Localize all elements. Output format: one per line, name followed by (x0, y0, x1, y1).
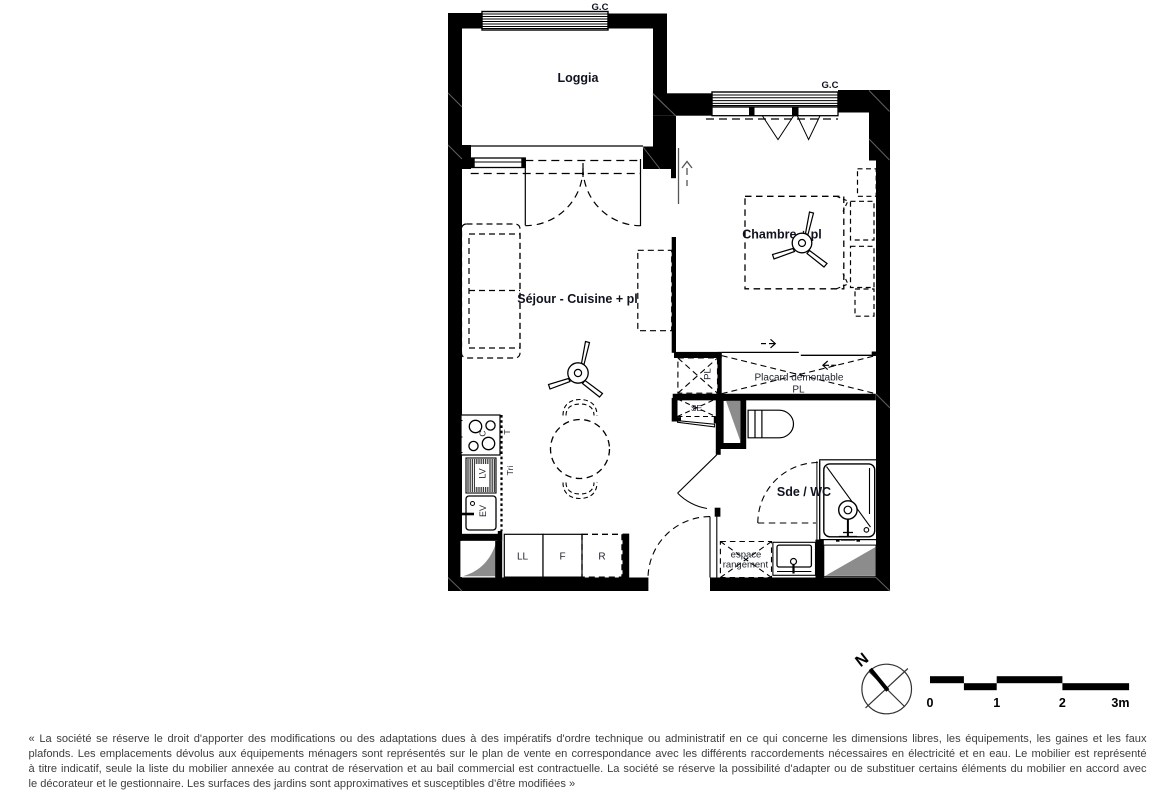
svg-text:T: T (502, 429, 512, 434)
svg-text:0: 0 (927, 696, 934, 710)
svg-text:Placard démontable: Placard démontable (755, 373, 844, 384)
svg-text:Tri: Tri (505, 466, 515, 476)
svg-text:3m: 3m (1111, 696, 1129, 710)
svg-text:F: F (559, 552, 565, 563)
svg-text:2: 2 (1059, 696, 1066, 710)
svg-text:PL: PL (792, 384, 805, 395)
svg-text:Sde / WC: Sde / WC (777, 485, 831, 499)
svg-text:R: R (598, 552, 605, 563)
svg-text:PL: PL (703, 368, 714, 380)
svg-text:SE: SE (691, 403, 703, 413)
svg-text:G.C: G.C (592, 2, 609, 13)
svg-text:Séjour - Cuisine + pl: Séjour - Cuisine + pl (517, 292, 638, 306)
svg-text:G.C: G.C (822, 80, 839, 91)
svg-text:N: N (853, 650, 873, 671)
svg-text:LL: LL (517, 552, 529, 563)
svg-text:EV: EV (478, 505, 488, 517)
svg-text:1: 1 (993, 696, 1000, 710)
svg-text:LV: LV (478, 468, 488, 478)
svg-text:C: C (478, 430, 488, 436)
svg-text:rangement: rangement (723, 560, 769, 571)
svg-text:Loggia: Loggia (558, 71, 600, 85)
